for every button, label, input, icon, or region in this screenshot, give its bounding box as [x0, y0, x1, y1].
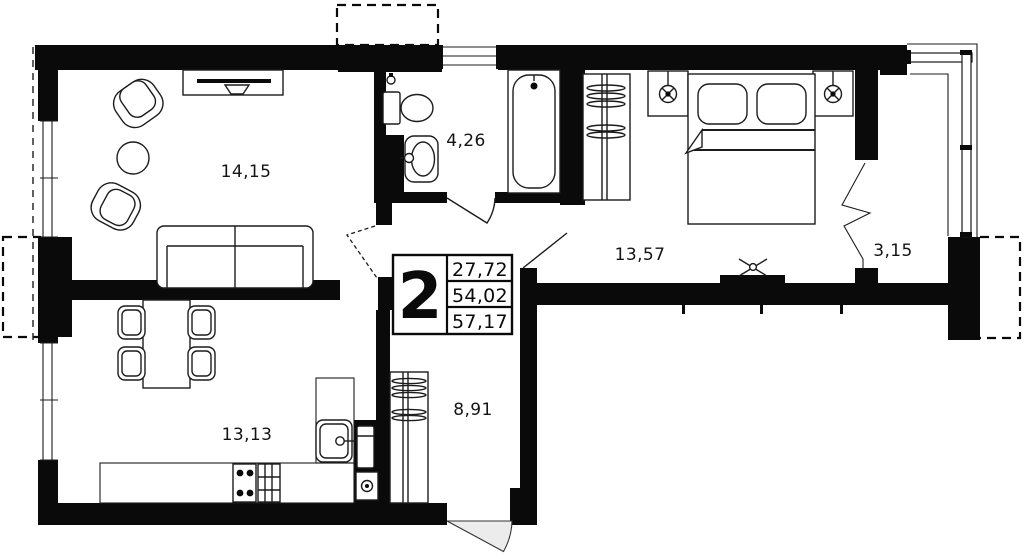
wall-bath-bedroom [560, 65, 585, 205]
chair-icon [118, 347, 145, 380]
bathroom-area-label: 4,26 [446, 131, 485, 151]
window-living [40, 121, 58, 237]
floor-plan: 2 27,72 54,02 57,17 14,15 4,26 13,57 3,1… [0, 0, 1024, 559]
double-bed-icon [686, 74, 815, 224]
wall-left-upper [38, 45, 58, 121]
wall-top-shaft [338, 45, 442, 72]
entrance-door-swing [447, 521, 512, 552]
bedroom-door-leaf [523, 233, 567, 268]
stamp-total-area: 57,17 [452, 311, 508, 333]
facade-tick [760, 305, 763, 314]
hallway-furniture [390, 372, 428, 503]
toilet-paper-holder-icon [387, 73, 395, 84]
hallway-area-label: 8,91 [453, 400, 492, 420]
balcony-glazing [905, 44, 977, 237]
wall-bottom [38, 503, 447, 525]
facade-tick [840, 305, 843, 314]
chair-icon [188, 347, 215, 380]
kitchen-sink-icon [316, 420, 356, 462]
balcony-folding-door [842, 163, 870, 270]
tv-icon [197, 79, 271, 83]
bathroom-door-swing [447, 198, 495, 223]
stamp-rooms-count: 2 [398, 260, 443, 334]
bathtub-icon [508, 70, 560, 193]
wall-bath-bottom-left [374, 192, 447, 203]
wall-living-door-stub [378, 277, 392, 310]
stamp-living-area: 27,72 [452, 259, 508, 281]
wall-hallway-right [520, 268, 537, 525]
washing-machine-icon [356, 472, 378, 500]
extension-dashed-right [978, 237, 1020, 338]
hall-wardrobe-icon [390, 372, 428, 503]
nightstand-left [648, 71, 688, 116]
sofa-icon [157, 226, 313, 288]
balcony-area-label: 3,15 [873, 241, 912, 261]
vent-shaft-top [337, 5, 438, 45]
living-room-furniture [86, 70, 313, 288]
vent-shaft-left [3, 237, 40, 337]
fridge-icon [357, 426, 374, 468]
floor-plan-canvas: 2 27,72 54,02 57,17 14,15 4,26 13,57 3,1… [0, 0, 1024, 559]
sink-icon [400, 136, 438, 182]
wall-kitchen-hall [376, 310, 390, 420]
wall-corner-bottomright [948, 237, 980, 340]
chair-icon [188, 306, 215, 339]
wall-sink-halfwall [374, 135, 404, 193]
kitchen-counter-bottom [100, 463, 354, 503]
wall-bedroom-bottom [537, 283, 950, 305]
oven-icon [258, 464, 280, 502]
kitchen-area-label: 13,13 [222, 425, 273, 445]
armchair-icon [108, 73, 169, 133]
wall-bedroom-right-upper [855, 65, 878, 160]
dining-table-icon [143, 300, 190, 388]
tv-stand [183, 70, 283, 95]
living-room-door-swing [347, 226, 377, 278]
wall-corner-topright [880, 45, 907, 75]
bedroom-area-label: 13,57 [615, 245, 666, 265]
facade-tick [682, 305, 685, 314]
chair-icon [118, 306, 145, 339]
nightstand-right [813, 71, 853, 116]
wardrobe-icon [583, 74, 630, 200]
window-top-bath [439, 45, 500, 69]
wall-top-left [35, 45, 338, 70]
radiator-icon [720, 259, 785, 284]
kitchen-furniture [100, 300, 378, 503]
apartment-stamp: 2 27,72 54,02 57,17 [393, 255, 512, 334]
armchair-icon [86, 178, 146, 236]
living-room-area-label: 14,15 [221, 162, 272, 182]
toilet-icon [383, 92, 433, 124]
stove-icon [233, 464, 256, 502]
wall-top-right [498, 45, 880, 70]
stamp-apartment-area: 54,02 [452, 285, 508, 307]
coffee-table-icon [117, 142, 149, 174]
window-kitchen [40, 343, 58, 460]
wall-bedroom-right-stub [855, 268, 878, 283]
